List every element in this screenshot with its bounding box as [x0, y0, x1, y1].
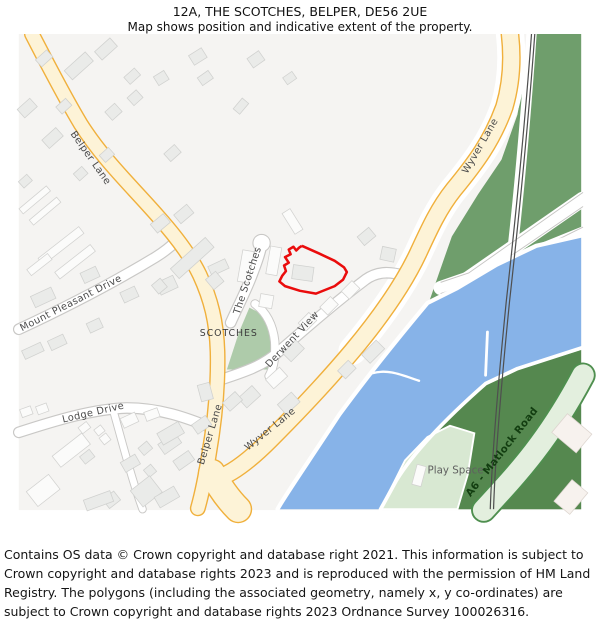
label-play-space: Play Space [428, 465, 484, 477]
building [259, 294, 274, 309]
map-canvas: Belper Lane Belper Lane Wyver Lane Wyver… [0, 34, 600, 542]
building [292, 265, 314, 282]
page-subtitle: Map shows position and indicative extent… [0, 19, 600, 34]
area-label-scotches: SCOTCHES [200, 328, 258, 339]
footer-copyright: Contains OS data © Crown copyright and d… [0, 542, 600, 625]
building [380, 246, 396, 262]
page-title: 12A, THE SCOTCHES, BELPER, DE56 2UE [0, 0, 600, 19]
header: 12A, THE SCOTCHES, BELPER, DE56 2UE Map … [0, 0, 600, 34]
